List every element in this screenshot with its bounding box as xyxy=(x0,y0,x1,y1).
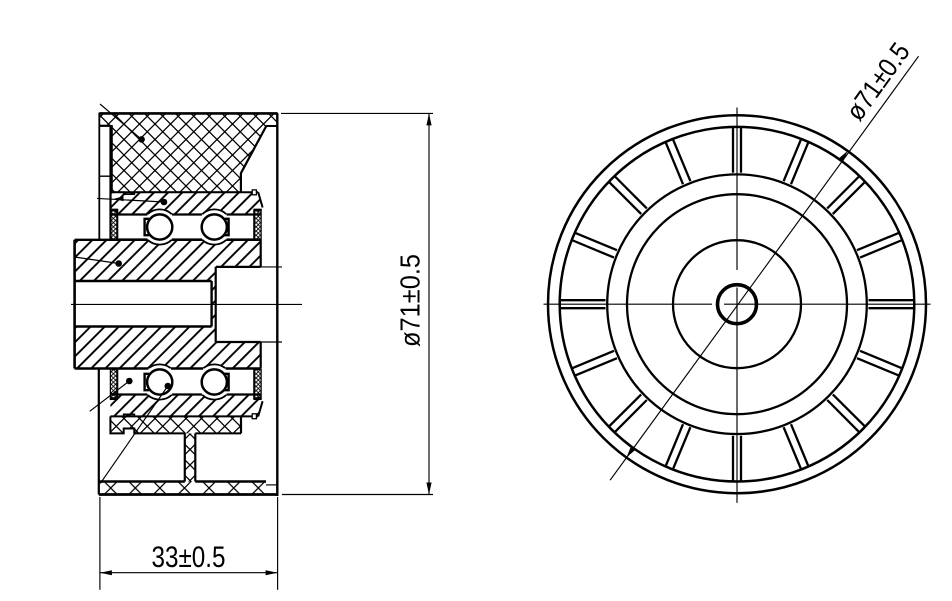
svg-text:ø71±0.5: ø71±0.5 xyxy=(395,254,426,347)
svg-text:33±0.5: 33±0.5 xyxy=(152,541,226,574)
